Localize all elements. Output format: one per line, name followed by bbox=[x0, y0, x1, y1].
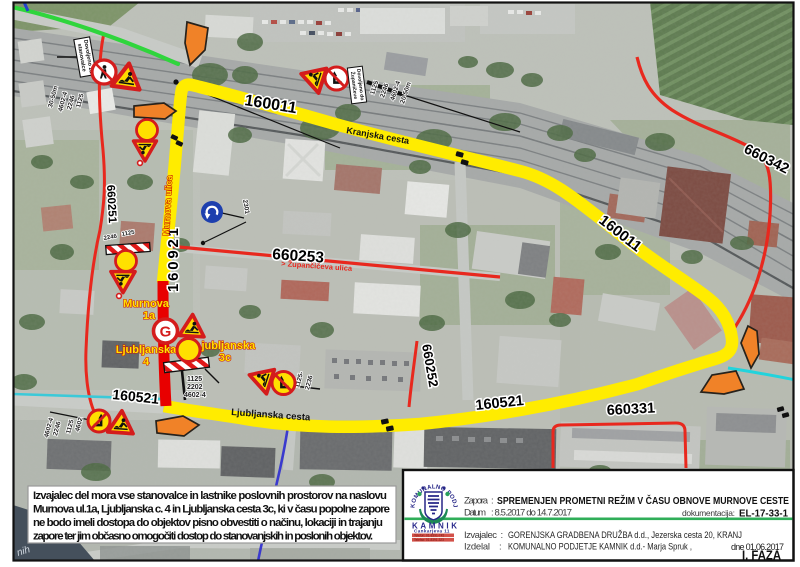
svg-text::: : bbox=[501, 530, 504, 541]
svg-text:3c: 3c bbox=[219, 352, 231, 364]
svg-text:Ljubljanska: Ljubljanska bbox=[195, 340, 256, 352]
svg-text:: 8.5.2017 do 14.7.2017: : 8.5.2017 do 14.7.2017 bbox=[491, 508, 572, 519]
svg-text:4602-4: 4602-4 bbox=[184, 392, 206, 399]
svg-text:660251: 660251 bbox=[104, 185, 118, 225]
svg-text:Izdelal: Izdelal bbox=[464, 542, 490, 553]
svg-text:Izvajalec del mora vse stanova: Izvajalec del mora vse stanovalce in las… bbox=[33, 490, 387, 502]
svg-text:KOMUNALNO PODJETJE KAMNIK d.d.: KOMUNALNO PODJETJE KAMNIK d.d.- Marja Sp… bbox=[508, 542, 692, 553]
svg-text:GORENJSKA GRADBENA DRUŽBA d.d.: GORENJSKA GRADBENA DRUŽBA d.d., Jezerska… bbox=[508, 530, 742, 541]
svg-text:EL-17-33-1: EL-17-33-1 bbox=[739, 508, 788, 520]
svg-text:660331: 660331 bbox=[606, 400, 655, 419]
svg-text:Ljubljanska: Ljubljanska bbox=[116, 344, 177, 356]
svg-text:Telefon: 01-8391-745: Telefon: 01-8391-745 bbox=[414, 534, 444, 538]
svg-text:G: G bbox=[160, 324, 172, 341]
svg-text:Murnova: Murnova bbox=[123, 298, 170, 310]
svg-text:Murnova ul.1a, Ljubljanska c.: Murnova ul.1a, Ljubljanska c. 4 in Ljubl… bbox=[33, 504, 390, 516]
svg-text:1a: 1a bbox=[143, 310, 156, 322]
svg-text:1125: 1125 bbox=[187, 376, 202, 383]
svg-text:zapore ter jim občasno omogoči: zapore ter jim občasno omogočiti dostop … bbox=[33, 531, 373, 543]
svg-text:dokumentacija:: dokumentacija: bbox=[682, 508, 735, 518]
svg-text:2202: 2202 bbox=[187, 384, 203, 391]
svg-text:ne bodo imeli dostopa do objek: ne bodo imeli dostopa do objektov pisno … bbox=[33, 517, 383, 529]
svg-text:SPREMENJEN PROMETNI REŽIM V ČA: SPREMENJEN PROMETNI REŽIM V ČASU OBNOVE … bbox=[497, 494, 789, 507]
svg-text::: : bbox=[499, 542, 502, 553]
svg-text:Datum: Datum bbox=[464, 508, 486, 519]
svg-text:4: 4 bbox=[143, 356, 150, 368]
svg-text:Telefax: 01-8391-323: Telefax: 01-8391-323 bbox=[414, 538, 444, 542]
svg-text:Izvajalec: Izvajalec bbox=[464, 530, 497, 541]
svg-text::: : bbox=[491, 496, 494, 507]
svg-text:Zapora: Zapora bbox=[464, 496, 489, 507]
